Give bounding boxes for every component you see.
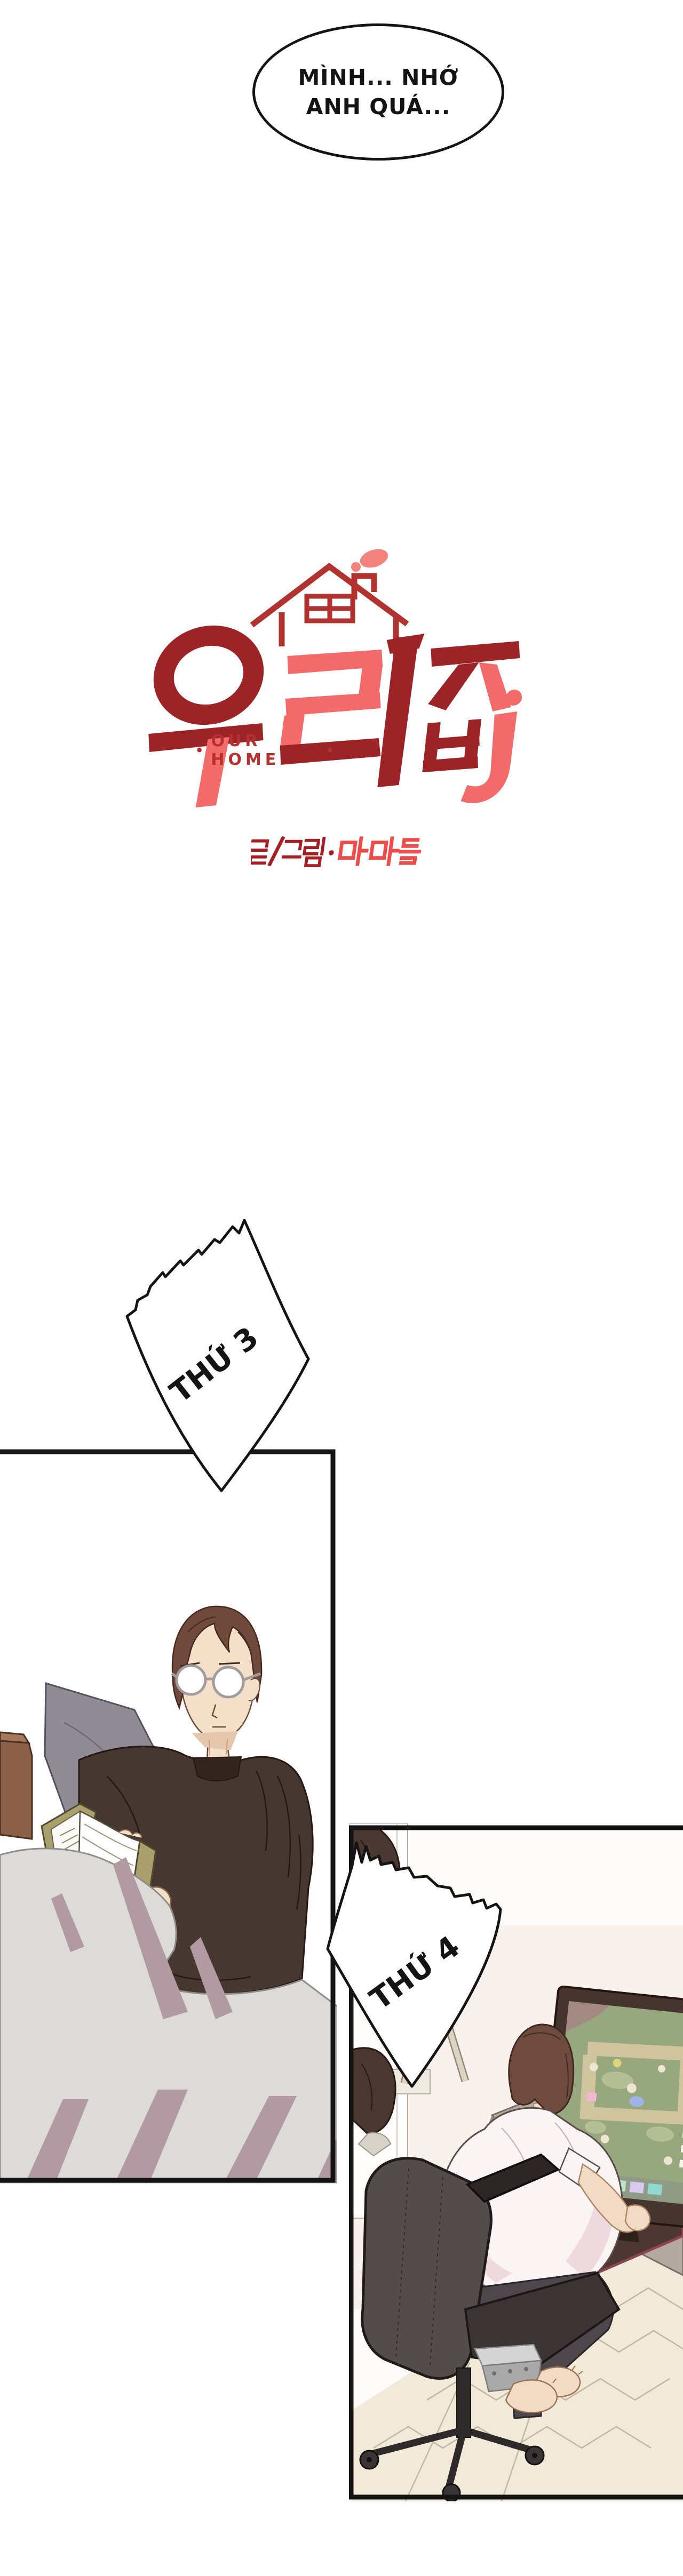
- head-hair: [509, 2025, 574, 2114]
- day-note-tuesday: THỨ 3: [115, 1211, 317, 1499]
- nightstand: [0, 1732, 32, 1839]
- credit-artist-name: [339, 838, 421, 864]
- series-subtitle: • OUR HOME •: [195, 732, 334, 769]
- smoke-icon: [351, 546, 391, 572]
- sweater-collar: [193, 1757, 241, 1781]
- subtitle-dot-right: •: [326, 743, 334, 758]
- series-logo: 우리집 글/그림 • 마마들: [0, 0, 683, 907]
- subtitle-dot-left: •: [195, 743, 203, 758]
- credit-author-label: [251, 838, 324, 866]
- title-char-jip: [420, 641, 526, 803]
- title-char-u: [144, 630, 271, 807]
- house-window: [307, 596, 353, 621]
- day-note-wednesday: THỨ 4: [317, 1832, 510, 2099]
- series-title-art: [155, 629, 528, 813]
- webtoon-page: MÌNH... NHỚ ANH QUÁ... 우리집 글/그림 • 마마들: [0, 0, 683, 2576]
- subtitle-text: OUR HOME: [211, 732, 318, 769]
- credit-dot: [328, 850, 334, 855]
- series-credit-art: [251, 836, 422, 867]
- panel-1: [0, 1447, 337, 2185]
